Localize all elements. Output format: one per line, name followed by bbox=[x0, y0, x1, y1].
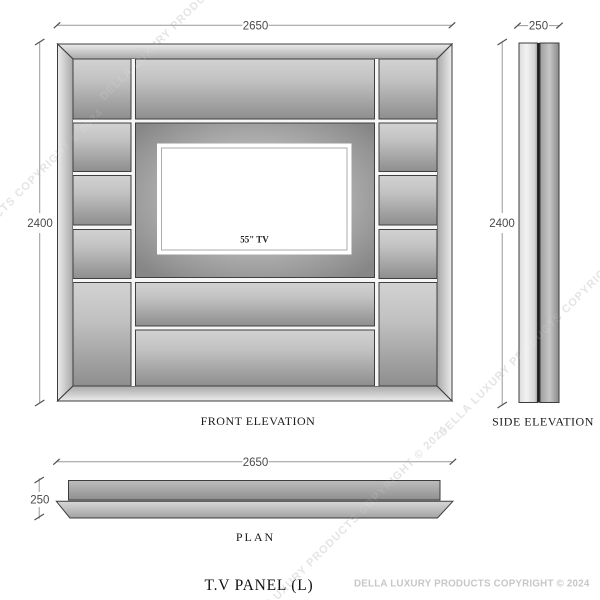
svg-text:250: 250 bbox=[529, 21, 548, 33]
svg-text:55" TV: 55" TV bbox=[240, 235, 269, 245]
svg-text:SIDE ELEVATION: SIDE ELEVATION bbox=[492, 415, 594, 429]
svg-text:2400: 2400 bbox=[27, 218, 53, 230]
svg-text:DELLA LUXURY PRODUCTS COPYRIGH: DELLA LUXURY PRODUCTS COPYRIGHT © 2024 bbox=[354, 579, 590, 590]
svg-text:250: 250 bbox=[30, 495, 49, 507]
svg-text:DELLA LUXURY PRODUCTS COPYRIGH: DELLA LUXURY PRODUCTS COPYRIGHT © 2024 bbox=[437, 223, 600, 439]
svg-text:2650: 2650 bbox=[243, 20, 269, 32]
svg-text:2650: 2650 bbox=[243, 457, 269, 469]
svg-text:FRONT ELEVATION: FRONT ELEVATION bbox=[201, 414, 316, 428]
svg-text:2400: 2400 bbox=[489, 218, 515, 230]
svg-text:PLAN: PLAN bbox=[236, 530, 275, 544]
